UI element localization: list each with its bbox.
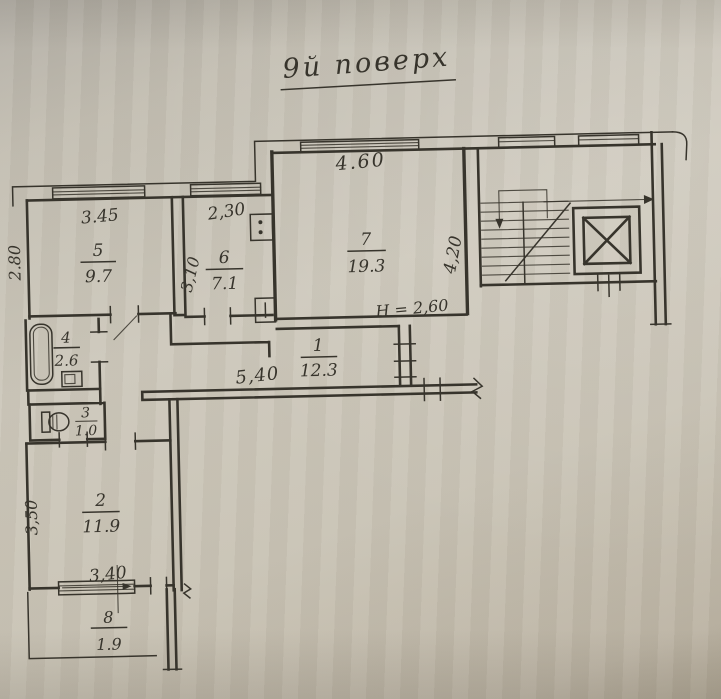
door-jambs-room-6 [204,308,230,325]
room-label-6: 6 7.1 [206,248,243,295]
floor-plan-drawing: 9й поверх [0,0,721,699]
room-6-area: 7.1 [211,274,238,295]
stair-diagonal [504,203,572,280]
wall-balcony-outline [28,590,156,659]
entrance-door-jambs [424,378,440,400]
door-swing-room-5 [113,316,137,340]
elevator-cross [583,217,630,264]
room-8-number: 8 [103,608,114,627]
room-5-area: 9.7 [85,267,113,288]
room-1-area: 12.3 [300,361,338,382]
dim-room5-width: 3.45 [80,205,120,228]
wall-bottom-staircase [481,281,656,285]
dim-room7-width: 4.60 [334,149,387,176]
stair-treads [481,201,570,275]
room-label-2: 2 11.9 [82,490,121,537]
room-7-area: 19.3 [347,256,385,277]
room-label-8: 8 1.9 [91,607,127,654]
balcony-door-jambs [150,577,166,593]
wall-left-staircase [478,150,481,286]
scanned-paper-background: 9й поверх [0,0,721,699]
vent-dot-1 [258,220,262,224]
dim-room7-depth: 4,20 [440,234,467,276]
wall-bottom-room-6 [186,315,273,317]
plan-title: 9й поверх [280,41,455,89]
door-jambs-bathroom [91,332,108,362]
page-title: 9й поверх [281,42,451,86]
room-4-area: 2.6 [53,351,79,370]
door-jambs-room-2 [105,433,135,450]
wall-break-symbol-room2 [184,584,191,598]
wall-top-rooms-5-6 [27,195,272,201]
wall-right-room-2 [169,399,181,590]
landing-arrow-line [544,200,644,202]
dim-hall-length: 5,40 [234,363,280,389]
dim-room2-width: 3,40 [88,563,128,587]
door-jambs-room-5 [110,306,138,323]
stair-path-arrowhead [495,219,503,229]
room-6-number: 6 [219,248,230,268]
room-label-3: 3 1.0 [74,405,97,439]
wall-corridor-step [170,313,269,358]
room-5-number: 5 [92,241,103,261]
ceiling-height-note: H = 2,60 [374,295,450,321]
wall-right-outer [651,132,665,324]
stair-flight-divider [523,202,525,282]
ventilation-shafts [250,214,275,322]
fixtures [30,323,83,432]
dim-room5-depth: 2.80 [5,245,25,282]
wall-bottom-room-5 [29,313,175,316]
room-2-area: 11.9 [82,516,120,537]
room-1-number: 1 [313,336,324,356]
dim-room6-depth: 3,10 [177,255,204,294]
room-label-1: 1 12.3 [299,336,338,382]
wall-balcony-right [167,589,177,669]
wall-bottom-hallway [142,384,476,400]
washbasin-icon [62,371,82,386]
room-8-area: 1.9 [96,634,122,654]
room-label-4: 4 2.6 [53,328,80,370]
room-3-number: 3 [81,405,90,421]
room-label-5: 5 9.7 [81,241,116,288]
dim-room2-depth: 3,50 [22,499,42,535]
dim-room6-width: 2,30 [205,199,247,224]
toilet-icon [42,412,69,433]
wall-break-symbol-entrance [472,378,482,398]
room-3-area: 1.0 [75,423,98,440]
window-room6 [191,183,261,196]
room-7-number: 7 [360,230,371,250]
bathtub-icon [30,324,53,384]
wall-vestibule-hatch [394,344,416,377]
room-2-number: 2 [94,491,106,511]
wall-right-room-7 [464,149,468,314]
room-4-number: 4 [60,329,71,347]
elevator-door-marks [598,273,621,296]
wall-room5-room6 [172,197,186,315]
vent-shaft-1 [250,214,273,240]
wall-left-room-5 [27,201,30,319]
room-label-7: 7 19.3 [347,229,386,277]
vent-dot-2 [259,230,263,234]
wall-bottom-room-7 [277,315,467,329]
